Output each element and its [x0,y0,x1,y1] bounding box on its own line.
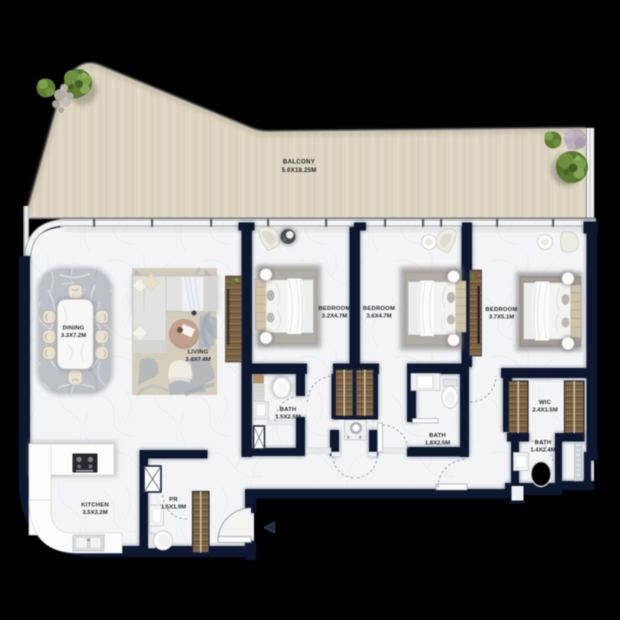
svg-text:1.5X2.5M: 1.5X2.5M [275,415,300,421]
svg-text:3.6X4.7M: 3.6X4.7M [366,314,391,320]
svg-text:BATH: BATH [280,407,297,413]
svg-text:PR: PR [169,497,178,503]
svg-text:1.4X2.4M: 1.4X2.4M [530,448,555,454]
svg-text:3.4X7.4M: 3.4X7.4M [185,357,210,363]
svg-text:DINING: DINING [63,326,85,332]
svg-text:BEDROOM: BEDROOM [485,307,517,313]
svg-text:BALCONY: BALCONY [283,159,315,166]
svg-text:BEDROOM: BEDROOM [363,306,395,312]
svg-text:1.8X2.5M: 1.8X2.5M [425,441,450,447]
svg-text:KITCHEN: KITCHEN [81,503,109,509]
svg-text:3.7X5.1M: 3.7X5.1M [489,315,514,321]
svg-text:2.4X1.5M: 2.4X1.5M [532,408,557,414]
svg-text:BEDROOM: BEDROOM [318,306,350,312]
svg-text:WIC: WIC [539,400,552,406]
svg-text:LIVING: LIVING [188,350,209,356]
svg-text:3.3X7.2M: 3.3X7.2M [61,333,86,339]
svg-text:3.2X4.7M: 3.2X4.7M [322,314,347,320]
svg-text:1.5X1.9M: 1.5X1.9M [161,505,186,511]
svg-text:5.0X18.25M: 5.0X18.25M [282,167,317,174]
svg-text:BATH: BATH [535,440,552,446]
svg-text:3.5X3.2M: 3.5X3.2M [82,510,107,516]
svg-text:BATH: BATH [429,433,446,439]
